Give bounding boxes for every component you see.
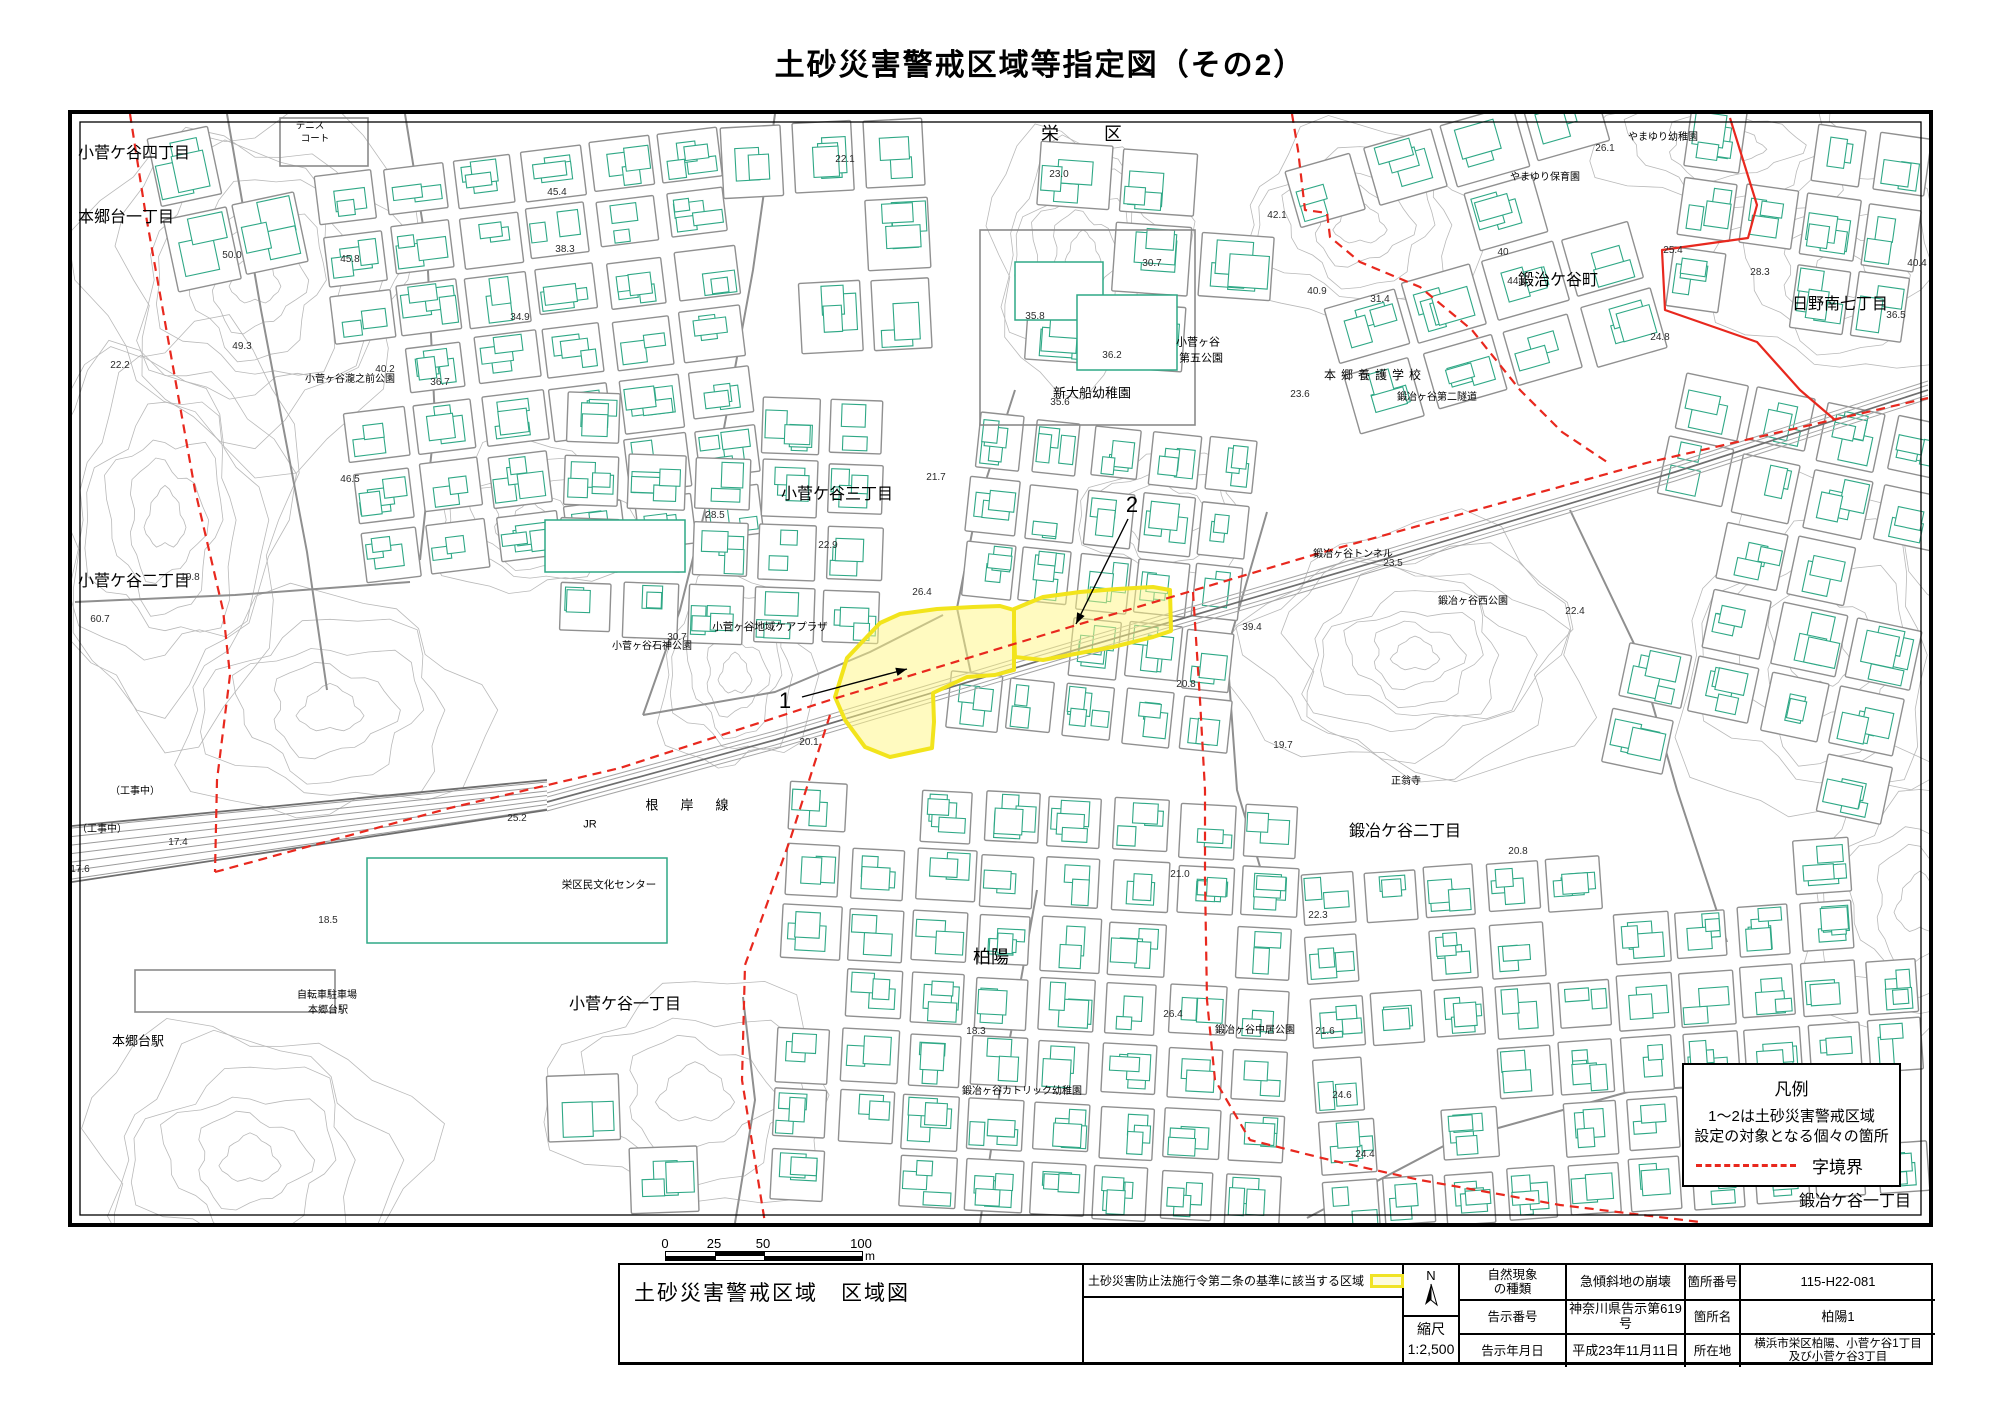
spot-label: 小菅ヶ谷瀧之前公園 bbox=[305, 375, 395, 385]
zone-color-swatch bbox=[1370, 1274, 1404, 1288]
table-value: 横浜市栄区柏陽、小菅ケ谷1丁目 及び小菅ケ谷3丁目 bbox=[1739, 1333, 1935, 1367]
elevation-label: 38.3 bbox=[555, 245, 574, 255]
elevation-label: 24.8 bbox=[1650, 333, 1669, 343]
elevation-label: 19.7 bbox=[1273, 741, 1292, 751]
titleblock-criteria-cell: 土砂災害防止法施行令第二条の基準に該当する区域 bbox=[1084, 1265, 1404, 1362]
titleblock-map-title: 土砂災害警戒区域 区域図 bbox=[634, 1277, 910, 1307]
elevation-label: 22.3 bbox=[1308, 911, 1327, 921]
area-label: 栄区 bbox=[1041, 125, 1167, 143]
table-value: 神奈川県告示第619号 bbox=[1565, 1299, 1684, 1333]
legend-line1: 1～2は土砂災害警戒区域 bbox=[1708, 1105, 1875, 1126]
elevation-label: 18.5 bbox=[318, 916, 337, 926]
titleblock-map-title-cell: 土砂災害警戒区域 区域図 bbox=[620, 1265, 1084, 1362]
elevation-label: 50.0 bbox=[222, 251, 241, 261]
elevation-label: 36.2 bbox=[1102, 351, 1121, 361]
elevation-label: 24.4 bbox=[1355, 1150, 1374, 1160]
spot-label: （工事中） bbox=[110, 787, 160, 797]
table-key: 自然現象 の種類 bbox=[1460, 1265, 1565, 1299]
spot-label: やまゆり幼稚園 bbox=[1628, 133, 1698, 143]
legend-box: 凡例 1～2は土砂災害警戒区域 設定の対象となる個々の箇所 字境界 bbox=[1682, 1063, 1901, 1187]
north-label: N bbox=[1404, 1268, 1458, 1283]
scale-label: 縮尺 bbox=[1417, 1321, 1445, 1337]
criteria-text: 土砂災害防止法施行令第二条の基準に該当する区域 bbox=[1088, 1272, 1364, 1289]
area-label: 日野南七丁目 bbox=[1792, 297, 1888, 313]
spot-label: 正翁寺 bbox=[1391, 777, 1421, 787]
spot-label: やまゆり保育園 bbox=[1510, 173, 1580, 183]
spot-label: コート bbox=[301, 134, 330, 144]
boundary-dash-sample bbox=[1696, 1164, 1796, 1167]
elevation-label: 25.4 bbox=[1663, 246, 1682, 256]
elevation-label: 21.7 bbox=[926, 473, 945, 483]
elevation-label: 30.7 bbox=[1142, 259, 1161, 269]
elevation-label: 20.8 bbox=[1176, 680, 1195, 690]
elevation-label: 21.0 bbox=[1170, 870, 1189, 880]
spot-label: JR bbox=[583, 820, 596, 831]
table-value: 急傾斜地の崩壊 bbox=[1565, 1265, 1684, 1299]
legend-line2: 設定の対象となる個々の箇所 bbox=[1694, 1125, 1889, 1146]
legend-boundary-row: 字境界 bbox=[1696, 1153, 1887, 1178]
elevation-label: 23.0 bbox=[1049, 170, 1068, 180]
spot-label: 栄区民文化センター bbox=[562, 880, 657, 891]
table-key: 箇所名 bbox=[1684, 1299, 1739, 1333]
elevation-label: 34.9 bbox=[510, 313, 529, 323]
elevation-label: 40.4 bbox=[1907, 259, 1926, 269]
elevation-label: 21.6 bbox=[1315, 1027, 1334, 1037]
scalebar-unit: m bbox=[865, 1249, 875, 1263]
elevation-label: 30.7 bbox=[667, 633, 686, 643]
elevation-label: 20.8 bbox=[1508, 847, 1527, 857]
elevation-label: 35.6 bbox=[1050, 398, 1069, 408]
area-label: 鍛冶ケ谷一丁目 bbox=[1799, 1194, 1911, 1210]
elevation-label: 45.4 bbox=[547, 188, 566, 198]
spot-label: 小菅ヶ谷 bbox=[1176, 338, 1220, 349]
area-label: 小菅ケ谷四丁目 bbox=[78, 146, 190, 162]
map-labels-layer: 小菅ケ谷四丁目本郷台一丁目小菅ケ谷二丁目小菅ケ谷三丁目栄区鍛治ケ谷町日野南七丁目… bbox=[72, 114, 1929, 1223]
elevation-label: 23.5 bbox=[1383, 559, 1402, 569]
elevation-label: 22.2 bbox=[110, 361, 129, 371]
title-block: 土砂災害警戒区域 区域図 土砂災害防止法施行令第二条の基準に該当する区域 N 縮… bbox=[618, 1263, 1933, 1365]
elevation-label: 17.6 bbox=[70, 865, 89, 875]
elevation-label: 40.9 bbox=[1307, 287, 1326, 297]
legend-title: 凡例 bbox=[1775, 1075, 1809, 1100]
spot-label: 鍛冶ヶ谷第二隧道 bbox=[1397, 393, 1477, 403]
area-label: 鍛治ケ谷町 bbox=[1518, 273, 1598, 289]
area-label: 小菅ケ谷三丁目 bbox=[781, 487, 893, 503]
elevation-label: 22.9 bbox=[818, 541, 837, 551]
scalebar-tick: 25 bbox=[707, 1236, 721, 1251]
elevation-label: 39.4 bbox=[1242, 623, 1261, 633]
spot-label: 鍛冶ヶ谷西公園 bbox=[1438, 597, 1508, 607]
spot-label: 根岸線 bbox=[645, 799, 750, 812]
north-arrow-icon bbox=[1422, 1283, 1440, 1307]
elevation-label: 22.4 bbox=[1565, 607, 1584, 617]
spot-label: 鍛冶ヶ谷カトリック幼稚園 bbox=[962, 1087, 1082, 1097]
elevation-label: 23.6 bbox=[1290, 390, 1309, 400]
elevation-label: 26.1 bbox=[1595, 144, 1614, 154]
elevation-label: 24.6 bbox=[1332, 1091, 1351, 1101]
elevation-label: 46.5 bbox=[340, 475, 359, 485]
scalebar-tick: 50 bbox=[756, 1236, 770, 1251]
table-key: 告示番号 bbox=[1460, 1299, 1565, 1333]
scalebar-tick: 0 bbox=[661, 1236, 668, 1251]
elevation-label: 19.8 bbox=[180, 573, 199, 583]
elevation-label: 31.4 bbox=[1370, 295, 1389, 305]
spot-label: テニス bbox=[296, 121, 325, 131]
spot-label: 自転車駐車場 bbox=[297, 991, 357, 1001]
elevation-label: 26.4 bbox=[912, 588, 931, 598]
elevation-label: 22.1 bbox=[835, 155, 854, 165]
elevation-label: 25.2 bbox=[507, 814, 526, 824]
elevation-label: 40.2 bbox=[375, 365, 394, 375]
elevation-label: 60.7 bbox=[90, 615, 109, 625]
elevation-label: 36.5 bbox=[1886, 311, 1905, 321]
scale-value: 1:2,500 bbox=[1408, 1341, 1455, 1357]
area-label: 小菅ケ谷二丁目 bbox=[78, 574, 190, 590]
area-label: 小菅ケ谷一丁目 bbox=[569, 997, 681, 1013]
elevation-label: 28.5 bbox=[705, 511, 724, 521]
elevation-label: 35.8 bbox=[1025, 312, 1044, 322]
elevation-label: 49.3 bbox=[232, 342, 251, 352]
elevation-label: 26.4 bbox=[1163, 1010, 1182, 1020]
spot-label: 小菅ヶ谷石神公園 bbox=[612, 642, 692, 652]
titleblock-north-scale-cell: N 縮尺 1:2,500 bbox=[1404, 1265, 1460, 1362]
map-frame: 小菅ケ谷四丁目本郷台一丁目小菅ケ谷二丁目小菅ケ谷三丁目栄区鍛治ケ谷町日野南七丁目… bbox=[68, 110, 1933, 1227]
table-value: 柏陽1 bbox=[1739, 1299, 1935, 1333]
elevation-label: 45.8 bbox=[340, 255, 359, 265]
table-value: 平成23年11月11日 bbox=[1565, 1333, 1684, 1367]
spot-label: （工事中） bbox=[77, 825, 127, 835]
spot-label: 本郷台駅 bbox=[308, 1006, 348, 1016]
table-key: 箇所番号 bbox=[1684, 1265, 1739, 1299]
elevation-label: 28.3 bbox=[1750, 268, 1769, 278]
titleblock-table: 自然現象 の種類 急傾斜地の崩壊 箇所番号 115-H22-081 告示番号 神… bbox=[1460, 1265, 1935, 1362]
elevation-label: 40 bbox=[1497, 248, 1508, 258]
spot-label: 鍛冶ヶ谷中居公園 bbox=[1215, 1026, 1295, 1036]
spot-label: 小菅ヶ谷地域ケアプラザ bbox=[712, 622, 828, 633]
scalebar: 02550100 m bbox=[665, 1236, 885, 1262]
spot-label: 鍛冶ヶ谷トンネル bbox=[1313, 550, 1393, 560]
page-title: 土砂災害警戒区域等指定図（その2） bbox=[775, 40, 1306, 84]
spot-label: 本郷養護学校 bbox=[1324, 369, 1426, 381]
zone-marker-number: 1 bbox=[779, 690, 791, 712]
elevation-label: 44.4 bbox=[1507, 277, 1526, 287]
elevation-label: 42.1 bbox=[1267, 211, 1286, 221]
elevation-label: 36.7 bbox=[430, 378, 449, 388]
table-key: 告示年月日 bbox=[1460, 1333, 1565, 1367]
table-value: 115-H22-081 bbox=[1739, 1265, 1935, 1299]
area-label: 本郷台駅 bbox=[112, 1035, 164, 1048]
legend-boundary-label: 字境界 bbox=[1812, 1153, 1863, 1178]
page: 土砂災害警戒区域等指定図（その2） 小菅ケ谷四丁目本郷台一丁目小菅ケ谷二丁目小菅… bbox=[0, 0, 2000, 1414]
elevation-label: 20.1 bbox=[799, 738, 818, 748]
area-label: 柏陽 bbox=[973, 948, 1009, 966]
scalebar-bar bbox=[665, 1251, 863, 1261]
elevation-label: 18.3 bbox=[966, 1027, 985, 1037]
zone-marker-number: 2 bbox=[1126, 494, 1138, 516]
elevation-label: 17.4 bbox=[168, 838, 187, 848]
area-label: 鍛冶ケ谷二丁目 bbox=[1349, 824, 1461, 840]
spot-label: 第五公園 bbox=[1179, 354, 1223, 365]
area-label: 本郷台一丁目 bbox=[78, 210, 174, 226]
table-key: 所在地 bbox=[1684, 1333, 1739, 1367]
